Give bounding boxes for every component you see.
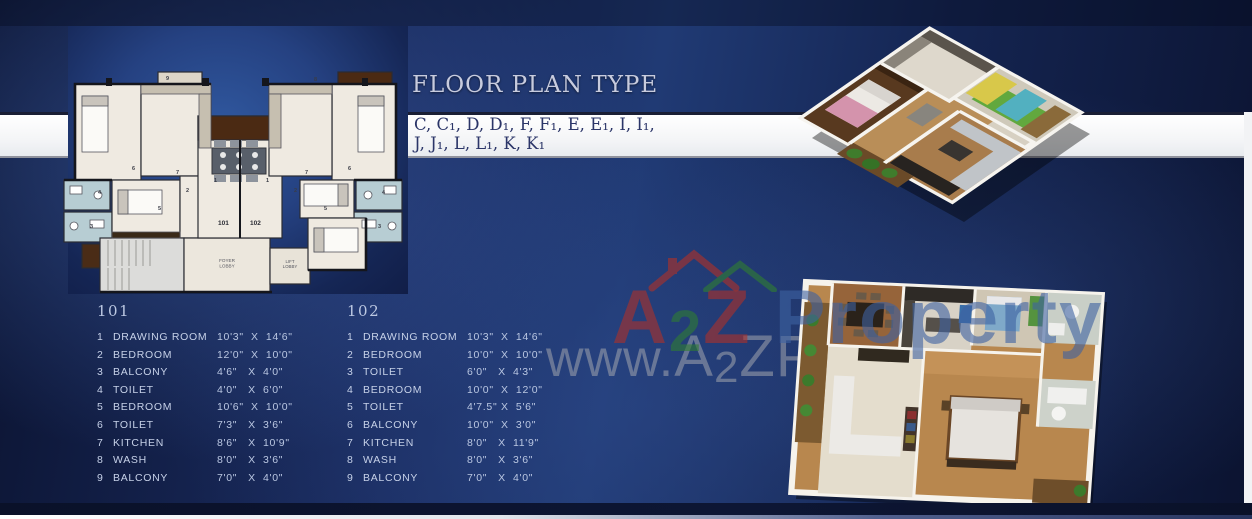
room-name: DRAWING ROOM <box>113 329 217 347</box>
row-number: 7 <box>347 435 363 453</box>
room-name: WASH <box>363 452 467 470</box>
room-number-marker: 5 <box>324 206 327 212</box>
room-dimensions: 8'6" X 10'9" <box>217 435 317 453</box>
row-number: 5 <box>347 399 363 417</box>
room-dimensions: 7'0" X 4'0" <box>217 470 317 488</box>
row-number: 8 <box>97 452 113 470</box>
room-dimensions: 10'0" X 10'0" <box>467 347 547 365</box>
row-number: 6 <box>347 417 363 435</box>
room-number-marker: 6 <box>132 166 135 172</box>
row-number: 2 <box>97 347 113 365</box>
room-dimensions: 10'3" X 14'6" <box>217 329 317 347</box>
room-dimensions: 8'0" X 11'9" <box>467 435 547 453</box>
room-number-marker: 2 <box>186 188 189 194</box>
watermark-roof-icon <box>642 246 782 292</box>
room-dimensions: 4'7.5" X 5'6" <box>467 399 547 417</box>
plan-type-letters: C, C₁, D, D₁, F, F₁, E, E₁, I, I₁, J, J₁… <box>414 115 655 153</box>
room-name: DRAWING ROOM <box>363 329 467 347</box>
page-title: FLOOR PLAN TYPE <box>412 72 658 98</box>
table-row: 7KITCHEN8'6" X 10'9" <box>97 435 317 453</box>
room-name: TOILET <box>113 417 217 435</box>
row-number: 7 <box>97 435 113 453</box>
unit-102-table: 102 1DRAWING ROOM10'3" X 14'6"2BEDROOM10… <box>347 302 547 487</box>
room-number-marker: 9 <box>166 76 169 82</box>
room-dimensions: 10'6" X 10'0" <box>217 399 317 417</box>
room-name: TOILET <box>113 382 217 400</box>
room-name: BALCONY <box>363 417 467 435</box>
right-edge-strip <box>1244 112 1252 504</box>
room-number-marker: 5 <box>158 206 161 212</box>
row-number: 4 <box>347 382 363 400</box>
watermark-logo-part: Property <box>752 275 1104 360</box>
table-row: 2BEDROOM10'0" X 10'0" <box>347 347 547 365</box>
room-number-marker: 7 <box>176 170 179 176</box>
unit-101-label: 101 <box>218 220 229 227</box>
room-number-marker: 1 <box>214 178 217 184</box>
stair-lobby <box>100 238 184 292</box>
plan-types-line1: C, C₁, D, D₁, F, F₁, E, E₁, I, I₁, <box>414 115 655 134</box>
3d-render-top <box>780 10 1105 268</box>
room-number-marker: 8 <box>314 77 317 83</box>
unit-101-heading: 101 <box>97 302 317 320</box>
row-number: 3 <box>97 364 113 382</box>
room-name: BEDROOM <box>113 347 217 365</box>
table-row: 8WASH8'0" X 3'6" <box>347 452 547 470</box>
room-dimensions: 6'0" X 4'3" <box>467 364 547 382</box>
table-row: 3TOILET6'0" X 4'3" <box>347 364 547 382</box>
row-number: 6 <box>97 417 113 435</box>
unit-102-label: 102 <box>250 220 261 227</box>
table-row: 4TOILET4'0" X 6'0" <box>97 382 317 400</box>
room-number-marker: 2 <box>294 188 297 194</box>
room-name: KITCHEN <box>113 435 217 453</box>
room-number-marker: 7 <box>305 170 308 176</box>
row-number: 9 <box>97 470 113 488</box>
row-number: 1 <box>97 329 113 347</box>
room-name: BALCONY <box>363 470 467 488</box>
row-number: 3 <box>347 364 363 382</box>
table-row: 3BALCONY4'6" X 4'0" <box>97 364 317 382</box>
room-number-marker: 1 <box>266 178 269 184</box>
table-row: 5TOILET4'7.5" X 5'6" <box>347 399 547 417</box>
table-row: 5BEDROOM10'6" X 10'0" <box>97 399 317 417</box>
room-dimensions: 7'3" X 3'6" <box>217 417 317 435</box>
table-row: 1DRAWING ROOM10'3" X 14'6" <box>347 329 547 347</box>
room-dimensions: 4'6" X 4'0" <box>217 364 317 382</box>
row-number: 1 <box>347 329 363 347</box>
room-name: BEDROOM <box>363 347 467 365</box>
room-number-marker: 3 <box>378 224 381 230</box>
room-dimensions: 7'0" X 4'0" <box>467 470 547 488</box>
row-number: 8 <box>347 452 363 470</box>
plan-types-line2: J, J₁, L, L₁, K, K₁ <box>414 134 655 153</box>
room-name: TOILET <box>363 364 467 382</box>
room-dimensions: 8'0" X 3'6" <box>467 452 547 470</box>
room-dimensions: 8'0" X 3'6" <box>217 452 317 470</box>
table-row: 9BALCONY7'0" X 4'0" <box>347 470 547 488</box>
room-dimensions: 4'0" X 6'0" <box>217 382 317 400</box>
row-number: 2 <box>347 347 363 365</box>
room-name: TOILET <box>363 399 467 417</box>
foyer-label: FOYERLOBBY <box>219 258 236 268</box>
table-row: 6TOILET7'3" X 3'6" <box>97 417 317 435</box>
room-name: BEDROOM <box>363 382 467 400</box>
table-row: 7KITCHEN8'0" X 11'9" <box>347 435 547 453</box>
room-number-marker: 6 <box>348 166 351 172</box>
room-dimensions: 12'0" X 10'0" <box>217 347 317 365</box>
row-number: 9 <box>347 470 363 488</box>
balcony-top-left <box>158 72 202 84</box>
table-row: 8WASH8'0" X 3'6" <box>97 452 317 470</box>
room-name: WASH <box>113 452 217 470</box>
row-number: 4 <box>97 382 113 400</box>
unit-101-table: 101 1DRAWING ROOM10'3" X 14'6"2BEDROOM12… <box>97 302 317 487</box>
room-name: BALCONY <box>113 364 217 382</box>
unit-102-heading: 102 <box>347 302 547 320</box>
room-dimensions: 10'0" X 3'0" <box>467 417 547 435</box>
room-name: BALCONY <box>113 470 217 488</box>
table-row: 2BEDROOM12'0" X 10'0" <box>97 347 317 365</box>
watermark-logo-part: 2 <box>669 299 703 364</box>
room-name: KITCHEN <box>363 435 467 453</box>
2d-floor-plan: 101 102 FOYERLOBBY LIFTLOBBY 98776655221… <box>62 70 404 294</box>
table-row: 4BEDROOM10'0" X 12'0" <box>347 382 547 400</box>
toilet-right-1 <box>356 180 402 210</box>
table-row: 1DRAWING ROOM10'3" X 14'6" <box>97 329 317 347</box>
bottom-edge-line <box>0 515 1252 519</box>
floor-plan-brochure: www.A2ZProperty <box>0 0 1252 519</box>
table-row: 9BALCONY7'0" X 4'0" <box>97 470 317 488</box>
toilet-left-1 <box>64 180 110 210</box>
room-dimensions: 10'3" X 14'6" <box>467 329 547 347</box>
room-name: BEDROOM <box>113 399 217 417</box>
room-number-marker: 3 <box>90 224 93 230</box>
row-number: 5 <box>97 399 113 417</box>
table-row: 6BALCONY10'0" X 3'0" <box>347 417 547 435</box>
room-dimensions: 10'0" X 12'0" <box>467 382 547 400</box>
